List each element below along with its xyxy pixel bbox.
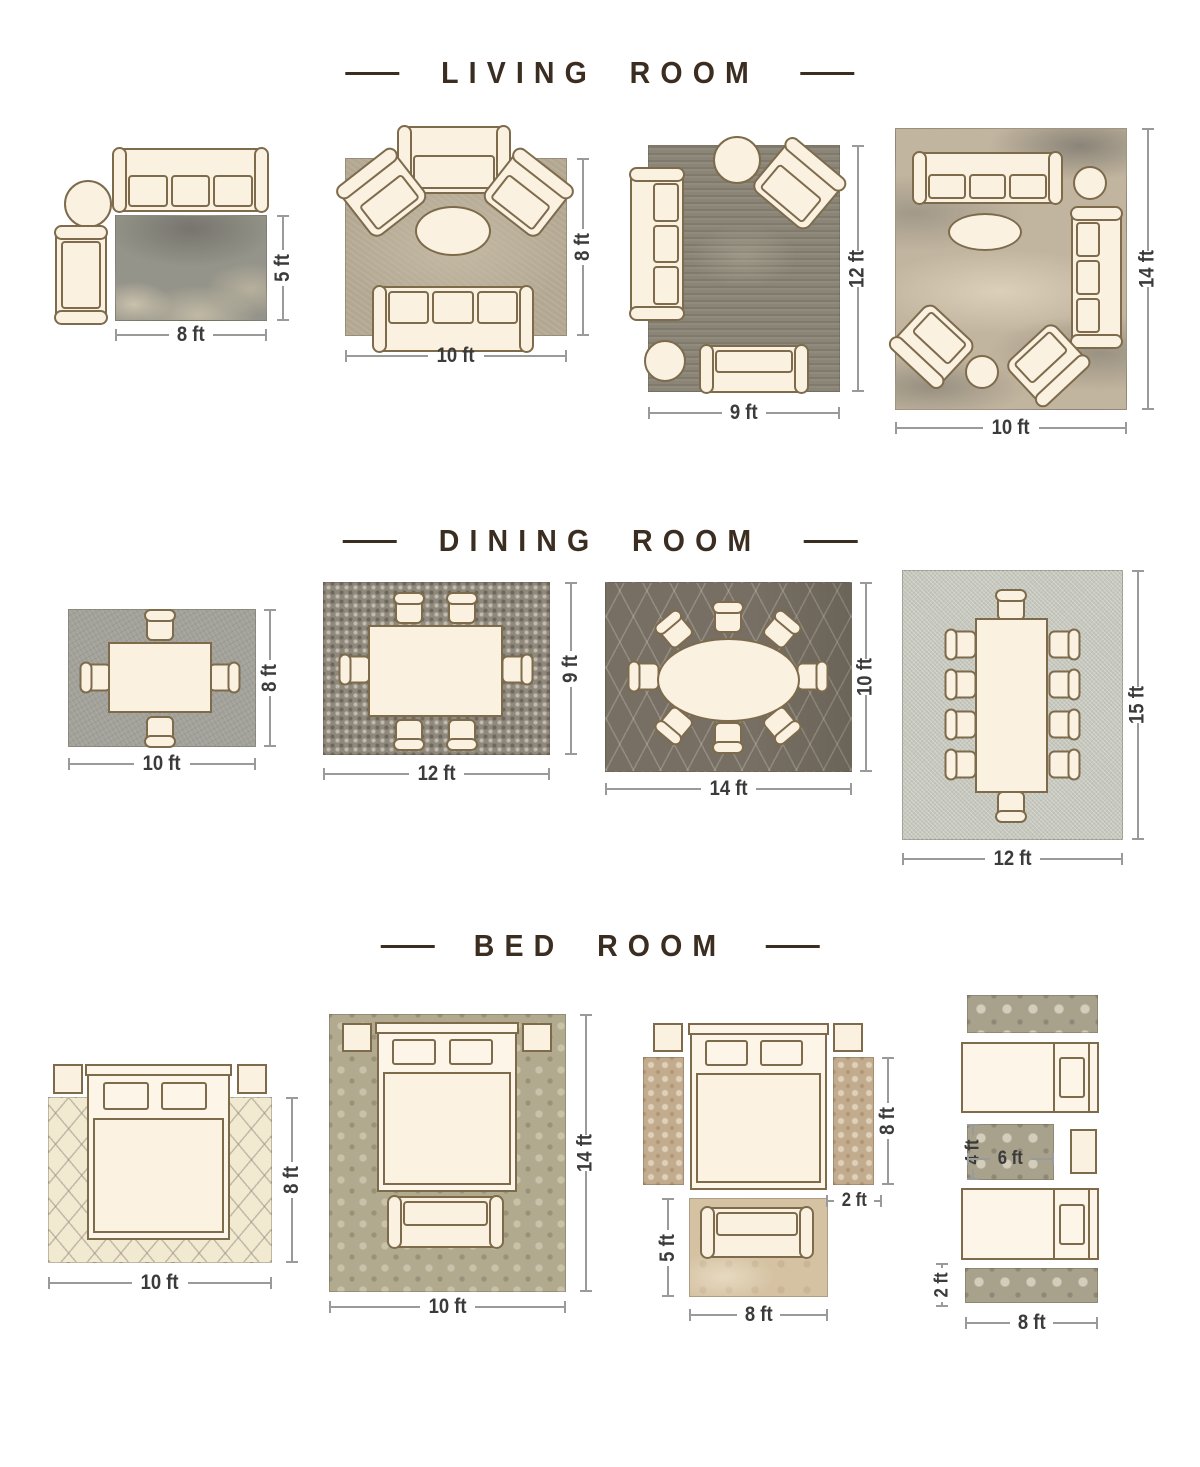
dimension-line bbox=[190, 763, 256, 765]
dining-table bbox=[108, 642, 212, 713]
bed bbox=[87, 1064, 230, 1240]
sofa-arm bbox=[699, 344, 714, 394]
dimension-line bbox=[887, 1139, 889, 1185]
dimension-line bbox=[857, 287, 859, 393]
dimension-line bbox=[585, 1014, 587, 1135]
dimension-label: 8 ft bbox=[1018, 1311, 1046, 1335]
sofa-arm bbox=[489, 1195, 504, 1249]
dimension-label: 2 ft bbox=[841, 1190, 866, 1212]
dimension-line bbox=[1137, 723, 1139, 840]
title-dash-left bbox=[381, 945, 435, 948]
dimension-label: 10 ft bbox=[437, 344, 475, 368]
dining-chair bbox=[209, 664, 236, 692]
dimension-line bbox=[475, 1306, 566, 1308]
headboard bbox=[85, 1064, 232, 1076]
seat-cushions bbox=[388, 291, 518, 324]
dimension-line bbox=[857, 145, 859, 251]
nightstand bbox=[342, 1023, 372, 1052]
width-dimension: 9 ft bbox=[648, 401, 840, 425]
dimension-line bbox=[689, 1314, 737, 1316]
dimension-line bbox=[323, 773, 409, 775]
dining-chair bbox=[395, 597, 423, 624]
pillow bbox=[103, 1082, 149, 1110]
height-dimension: 10 ft bbox=[853, 582, 879, 772]
dimension-label: 14 ft bbox=[709, 777, 747, 801]
sofa-arm bbox=[629, 306, 685, 321]
dimension-line bbox=[269, 609, 271, 660]
seat-cushions bbox=[1076, 222, 1100, 333]
dining-chair bbox=[950, 751, 977, 779]
dining-chair bbox=[1049, 711, 1076, 739]
dimension-label: 5 ft bbox=[271, 254, 295, 282]
sofa-arm bbox=[519, 285, 534, 353]
dining-chair bbox=[633, 663, 660, 691]
dimension-label: 10 ft bbox=[141, 1271, 179, 1295]
dimension-line bbox=[329, 1306, 420, 1308]
dimension-label: 8 ft bbox=[280, 1166, 304, 1194]
rug-size-guide: LIVING ROOM 8 ft 5 ft bbox=[0, 0, 1200, 1467]
round-side-table bbox=[965, 355, 999, 389]
title-dash-right bbox=[803, 540, 857, 543]
dimension-label: 14 ft bbox=[1136, 250, 1160, 288]
dimension-label: 10 ft bbox=[992, 416, 1030, 440]
nightstand bbox=[53, 1064, 83, 1094]
dimension-label: 10 ft bbox=[143, 752, 181, 776]
dimension-line bbox=[887, 1057, 889, 1103]
pillow bbox=[161, 1082, 207, 1110]
dining-chair bbox=[997, 594, 1025, 621]
height-dimension: 8 ft bbox=[570, 158, 596, 336]
dining-chair bbox=[714, 606, 742, 633]
dimension-line bbox=[282, 215, 284, 250]
dimension-line bbox=[582, 265, 584, 336]
dimension-label: 12 ft bbox=[993, 847, 1031, 871]
dimension-line bbox=[188, 1282, 272, 1284]
dimension-line bbox=[570, 582, 572, 651]
dimension-label: 9 ft bbox=[730, 401, 758, 425]
pillow bbox=[760, 1040, 803, 1066]
blanket bbox=[93, 1118, 224, 1233]
dimension-line bbox=[972, 1124, 974, 1135]
dimension-label: 10 ft bbox=[854, 658, 878, 696]
width-dimension: 10 ft bbox=[345, 344, 567, 368]
width-dimension: 12 ft bbox=[323, 762, 550, 786]
dimension-line bbox=[865, 695, 867, 772]
height-dimension: 15 ft bbox=[1125, 570, 1151, 840]
dining-chair bbox=[950, 711, 977, 739]
dimension-line bbox=[902, 858, 985, 860]
blanket bbox=[383, 1072, 511, 1185]
seat-cushions bbox=[61, 241, 101, 309]
blanket bbox=[696, 1073, 821, 1183]
dimension-line bbox=[1137, 570, 1139, 687]
dimension-line bbox=[282, 286, 284, 321]
headboard bbox=[375, 1022, 519, 1034]
dimension-line bbox=[967, 1158, 990, 1160]
dimension-line bbox=[1053, 1322, 1098, 1324]
foot-rug-width-dimension: 8 ft bbox=[689, 1303, 828, 1327]
dimension-line bbox=[865, 582, 867, 659]
sofa-arm bbox=[629, 167, 685, 182]
bed bbox=[377, 1022, 517, 1192]
dimension-line bbox=[291, 1198, 293, 1263]
dining-chair bbox=[344, 656, 371, 684]
sofa-arm bbox=[112, 147, 127, 213]
runner-rug bbox=[967, 995, 1098, 1033]
section-title-text: BED ROOM bbox=[474, 928, 727, 964]
height-dimension: 12 ft bbox=[845, 145, 871, 392]
dining-chair bbox=[714, 722, 742, 749]
dimension-line bbox=[1147, 128, 1149, 251]
dimension-line bbox=[48, 1282, 132, 1284]
runner-rug bbox=[833, 1057, 874, 1185]
dimension-line bbox=[667, 1198, 669, 1230]
dining-chair bbox=[950, 631, 977, 659]
dining-chair bbox=[146, 716, 174, 743]
dining-chair bbox=[1049, 751, 1076, 779]
bed-divider bbox=[1053, 1044, 1055, 1111]
pillow bbox=[449, 1039, 493, 1065]
rug bbox=[115, 215, 267, 321]
dining-chair bbox=[950, 671, 977, 699]
dining-chair bbox=[997, 791, 1025, 818]
sofa-arm bbox=[54, 310, 108, 325]
width-dimension: 10 ft bbox=[329, 1295, 566, 1319]
headboard bbox=[1088, 1188, 1099, 1260]
pillow bbox=[392, 1039, 436, 1065]
section-title-text: DINING ROOM bbox=[439, 523, 762, 559]
runner-width-dimension: 8 ft bbox=[965, 1311, 1098, 1335]
dining-table bbox=[368, 625, 503, 717]
round-side-table bbox=[1073, 166, 1107, 200]
title-dash-left bbox=[343, 540, 397, 543]
dimension-line bbox=[965, 1322, 1010, 1324]
runner-width-dimension: 2 ft bbox=[826, 1189, 882, 1213]
nightstand bbox=[833, 1023, 863, 1052]
dimension-line bbox=[826, 1200, 834, 1202]
runner-height-dimension: 2 ft bbox=[929, 1263, 955, 1307]
sofa-arm bbox=[794, 344, 809, 394]
height-dimension: 14 ft bbox=[1135, 128, 1161, 410]
dining-chair bbox=[448, 719, 476, 746]
height-dimension: 8 ft bbox=[279, 1097, 305, 1263]
round-side-table bbox=[64, 180, 112, 228]
seat-cushions bbox=[413, 155, 495, 189]
dimension-line bbox=[68, 763, 134, 765]
seat-cushions bbox=[928, 174, 1047, 199]
sofa-arm bbox=[1070, 334, 1123, 349]
headboard bbox=[688, 1023, 829, 1035]
dimension-label: 8 ft bbox=[177, 323, 205, 347]
dimension-label: 8 ft bbox=[876, 1107, 900, 1135]
width-dimension: 10 ft bbox=[68, 752, 256, 776]
foot-rug-height-dimension: 5 ft bbox=[655, 1198, 681, 1297]
sofa bbox=[113, 148, 268, 212]
sofa bbox=[630, 168, 684, 320]
dimension-label: 10 ft bbox=[428, 1295, 466, 1319]
seat-cushions bbox=[128, 175, 253, 207]
sofa-arm bbox=[1048, 151, 1063, 205]
sofa bbox=[373, 286, 533, 352]
dimension-label: 15 ft bbox=[1126, 686, 1150, 724]
dimension-label: 2 ft bbox=[931, 1272, 953, 1297]
bed-divider bbox=[1053, 1190, 1055, 1258]
sofa-arm bbox=[700, 1206, 715, 1259]
section-title-dining-room: DINING ROOM bbox=[343, 523, 858, 559]
nightstand bbox=[522, 1023, 552, 1052]
round-side-table bbox=[644, 340, 686, 382]
headboard bbox=[1088, 1042, 1099, 1113]
dimension-line bbox=[269, 696, 271, 747]
bench bbox=[701, 1207, 813, 1258]
oval-dining-table bbox=[657, 638, 800, 722]
dimension-label: 6 ft bbox=[998, 1148, 1023, 1170]
bed bbox=[690, 1023, 827, 1190]
dimension-line bbox=[648, 412, 722, 414]
round-side-table bbox=[713, 136, 761, 184]
dimension-line bbox=[1147, 287, 1149, 410]
section-title-bed-room: BED ROOM bbox=[381, 928, 820, 964]
dimension-line bbox=[766, 412, 840, 414]
pillow bbox=[1059, 1057, 1085, 1098]
section-title-living-room: LIVING ROOM bbox=[345, 55, 854, 91]
sofa-arm bbox=[912, 151, 927, 205]
dining-chair bbox=[448, 597, 476, 624]
dimension-line bbox=[585, 1171, 587, 1292]
sofa bbox=[913, 152, 1062, 204]
dimension-line bbox=[213, 334, 267, 336]
dimension-label: 9 ft bbox=[559, 655, 583, 683]
width-dimension: 14 ft bbox=[605, 777, 852, 801]
loveseat bbox=[700, 345, 808, 393]
dimension-label: 12 ft bbox=[846, 249, 870, 287]
dimension-line bbox=[667, 1266, 669, 1298]
height-dimension: 9 ft bbox=[558, 582, 584, 755]
dimension-line bbox=[582, 158, 584, 229]
section-title-text: LIVING ROOM bbox=[441, 55, 759, 91]
dimension-line bbox=[570, 687, 572, 756]
dimension-label: 5 ft bbox=[656, 1234, 680, 1262]
dining-chair bbox=[146, 614, 174, 641]
sofa-arm bbox=[372, 285, 387, 353]
width-dimension: 12 ft bbox=[902, 847, 1123, 871]
sofa-arm bbox=[387, 1195, 402, 1249]
dimension-line bbox=[291, 1097, 293, 1162]
seat-cushions bbox=[653, 183, 679, 305]
height-dimension: 8 ft bbox=[257, 609, 283, 747]
pillow bbox=[705, 1040, 748, 1066]
width-dimension: 10 ft bbox=[48, 1271, 272, 1295]
dimension-label: 12 ft bbox=[417, 762, 455, 786]
dimension-label: 8 ft bbox=[745, 1303, 773, 1327]
sofa bbox=[1071, 207, 1122, 348]
sofa-arm bbox=[54, 225, 108, 240]
dimension-line bbox=[941, 1263, 943, 1268]
width-dimension: 10 ft bbox=[895, 416, 1127, 440]
chaise-lounge bbox=[55, 226, 107, 324]
bench bbox=[388, 1196, 503, 1248]
oval-coffee-table bbox=[415, 206, 491, 256]
dimension-line bbox=[115, 334, 169, 336]
title-dash-right bbox=[801, 72, 855, 75]
dining-chair bbox=[1049, 671, 1076, 699]
dimension-label: 8 ft bbox=[571, 233, 595, 261]
nightstand bbox=[653, 1023, 683, 1052]
dimension-label: 8 ft bbox=[258, 664, 282, 692]
title-dash-right bbox=[765, 945, 819, 948]
pillow bbox=[1059, 1204, 1085, 1245]
dining-chair bbox=[797, 663, 824, 691]
dining-chair bbox=[395, 719, 423, 746]
dining-chair bbox=[1049, 631, 1076, 659]
sofa-arm bbox=[254, 147, 269, 213]
dimension-line bbox=[1040, 858, 1123, 860]
width-dimension: 8 ft bbox=[115, 323, 267, 347]
seat-cushions bbox=[716, 1212, 798, 1236]
dimension-line bbox=[484, 355, 567, 357]
nightstand bbox=[1070, 1129, 1097, 1174]
dining-table bbox=[975, 618, 1048, 793]
runner-rug bbox=[965, 1268, 1098, 1303]
small-rug-width-dimension: 6 ft bbox=[967, 1147, 1054, 1171]
sofa-arm bbox=[799, 1206, 814, 1259]
sofa-arm bbox=[1070, 206, 1123, 221]
dimension-line bbox=[1031, 1158, 1054, 1160]
dimension-line bbox=[874, 1200, 882, 1202]
nightstand bbox=[237, 1064, 267, 1094]
twin-bed bbox=[961, 1188, 1099, 1260]
dimension-line bbox=[895, 427, 983, 429]
dining-chair bbox=[502, 656, 529, 684]
dimension-line bbox=[345, 355, 428, 357]
twin-bed bbox=[961, 1042, 1099, 1113]
seat-cushions bbox=[403, 1201, 488, 1226]
dimension-line bbox=[1039, 427, 1127, 429]
height-dimension: 14 ft bbox=[573, 1014, 599, 1292]
title-dash-left bbox=[345, 72, 399, 75]
dimension-line bbox=[605, 788, 701, 790]
runner-rug bbox=[643, 1057, 684, 1185]
dimension-line bbox=[464, 773, 550, 775]
seat-cushions bbox=[715, 350, 793, 373]
dimension-line bbox=[780, 1314, 828, 1316]
dimension-line bbox=[756, 788, 852, 790]
oval-coffee-table bbox=[948, 213, 1022, 251]
dimension-line bbox=[941, 1302, 943, 1307]
height-dimension: 5 ft bbox=[270, 215, 296, 321]
runner-length-dimension: 8 ft bbox=[875, 1057, 901, 1185]
dimension-label: 14 ft bbox=[574, 1134, 598, 1172]
